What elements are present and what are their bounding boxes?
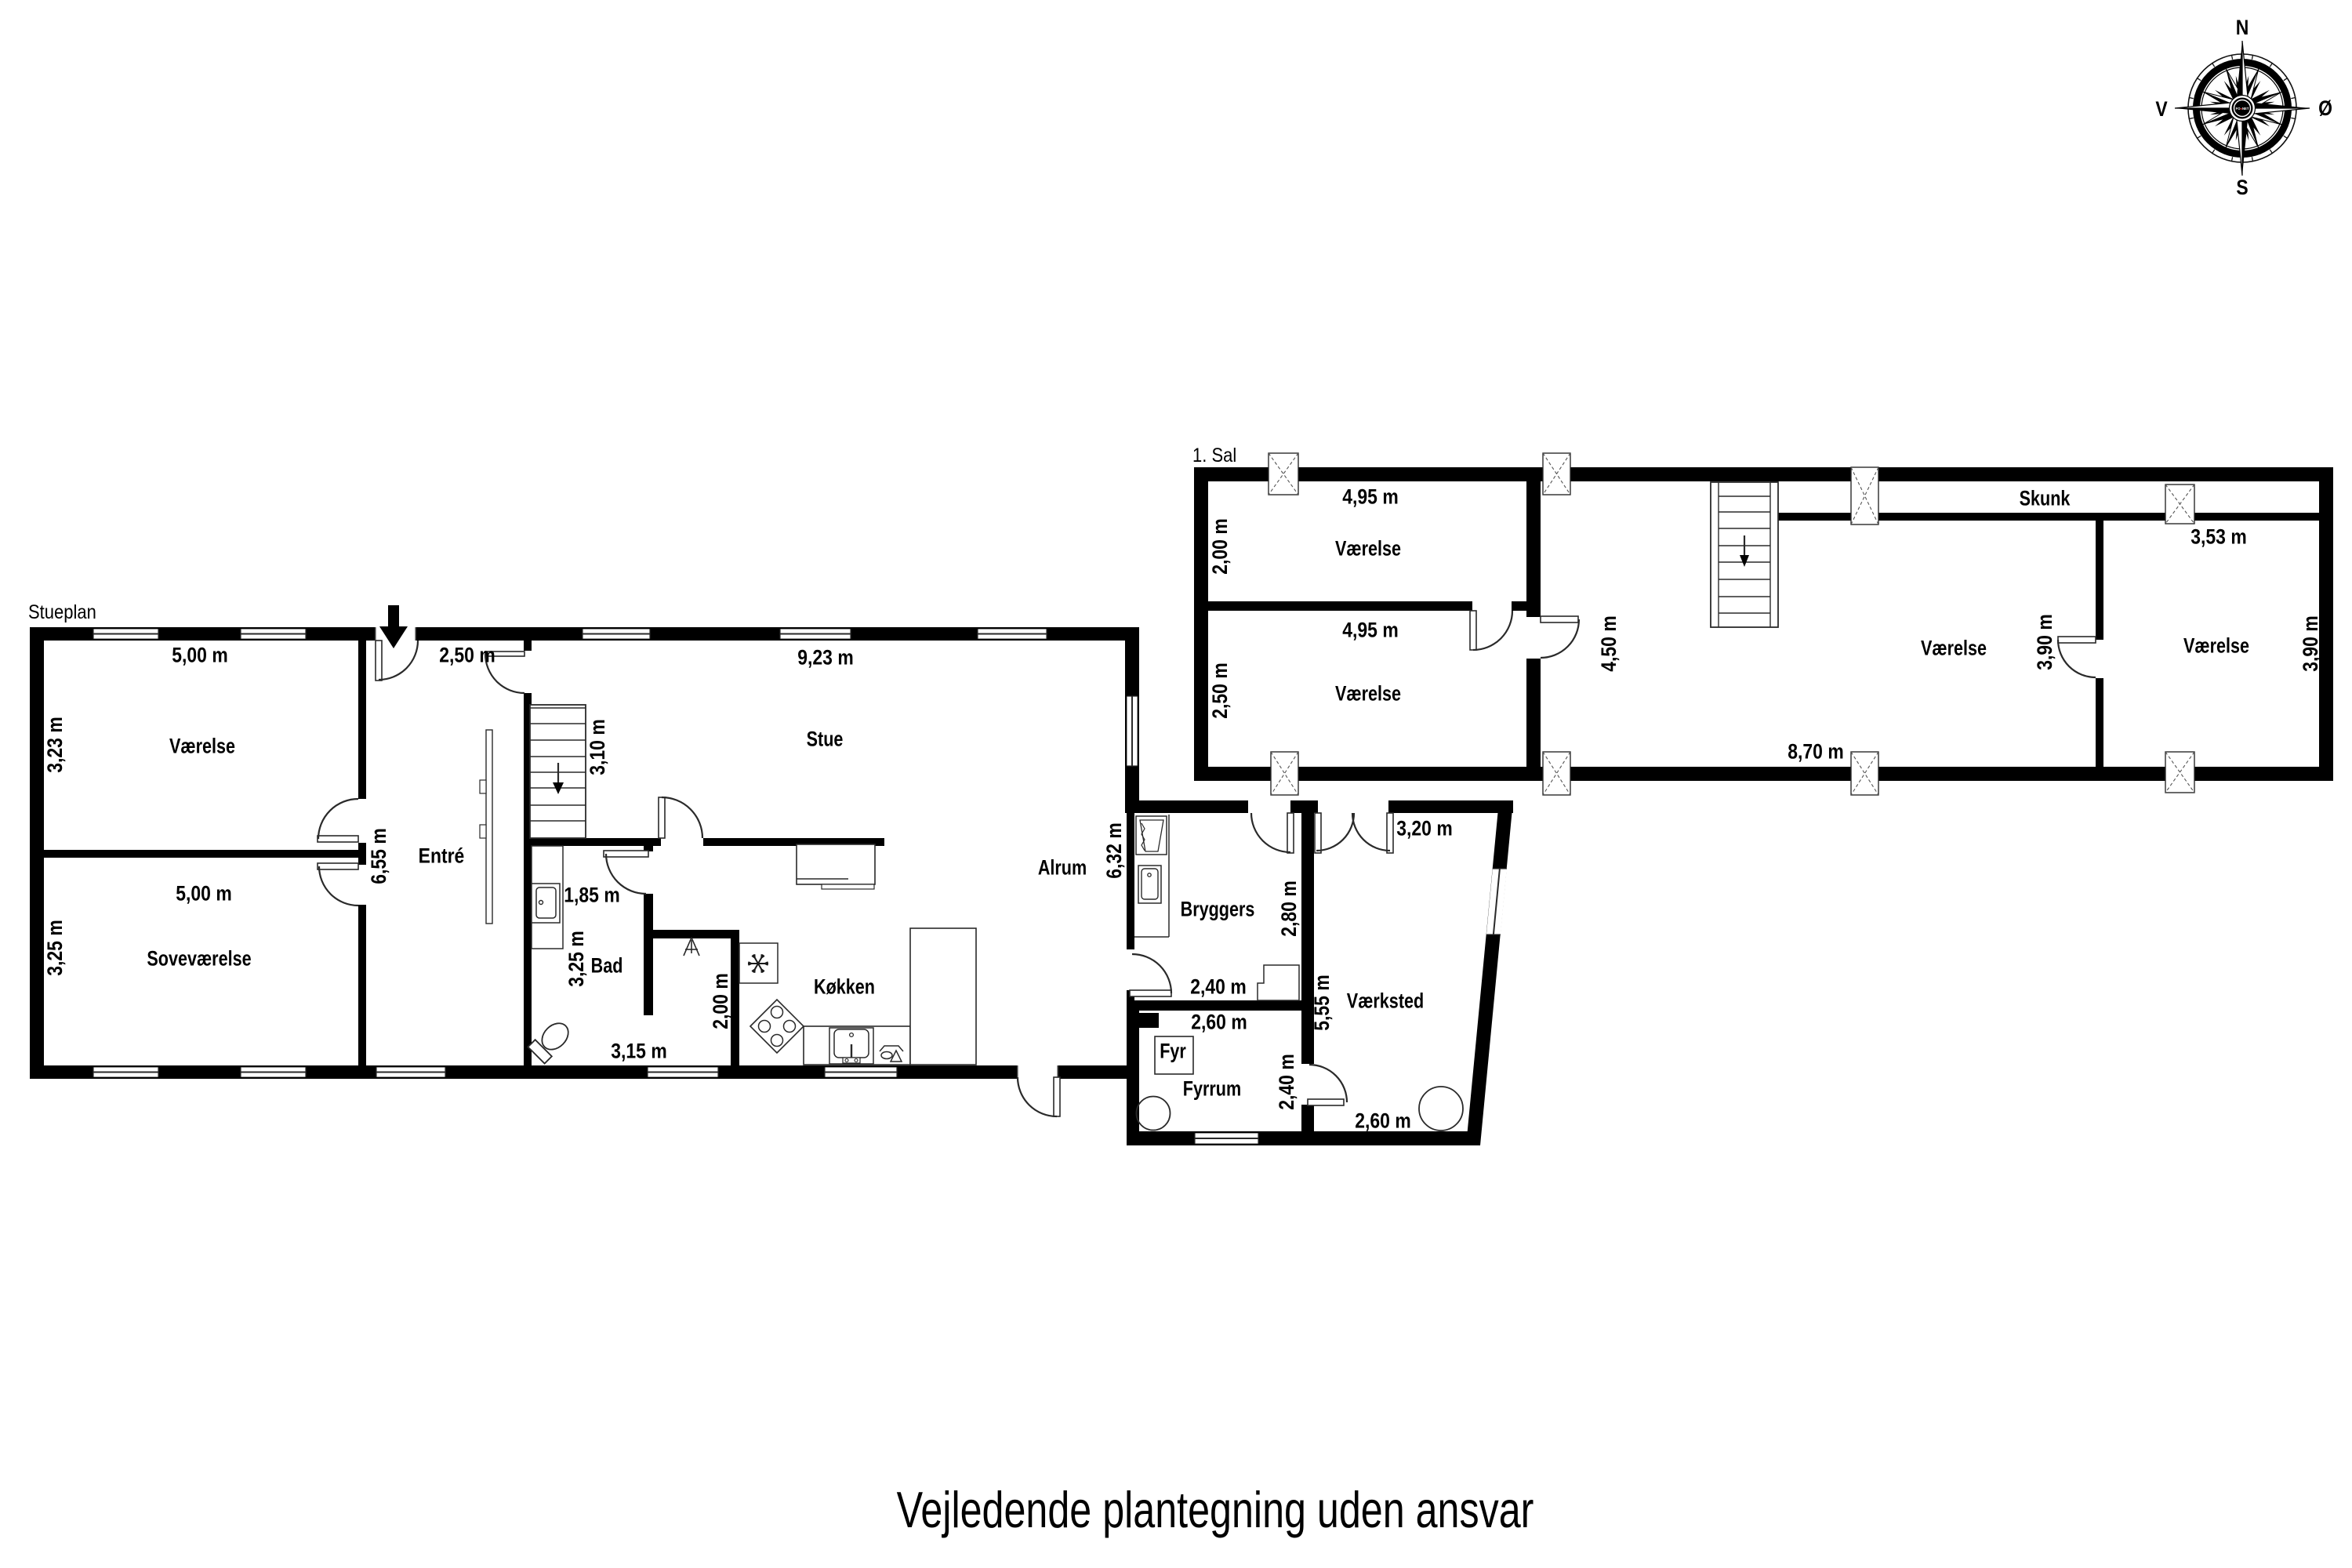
svg-text:3,90 m: 3,90 m	[2033, 614, 2056, 670]
svg-text:Ø: Ø	[2318, 96, 2332, 120]
svg-text:2,80 m: 2,80 m	[1277, 880, 1301, 936]
svg-text:5,55 m: 5,55 m	[1310, 975, 1334, 1030]
svg-text:2,40 m: 2,40 m	[1275, 1054, 1298, 1109]
svg-text:Entré: Entré	[419, 844, 465, 868]
svg-text:3,53 m: 3,53 m	[2190, 525, 2246, 549]
svg-text:2,00 m: 2,00 m	[1208, 518, 1232, 574]
svg-text:Bryggers: Bryggers	[1181, 898, 1255, 921]
svg-text:Værelse: Værelse	[2183, 634, 2249, 658]
svg-text:3,20 m: 3,20 m	[1396, 817, 1452, 840]
svg-text:2,50 m: 2,50 m	[439, 644, 495, 667]
svg-text:4,95 m: 4,95 m	[1342, 485, 1398, 509]
svg-text:3,25 m: 3,25 m	[43, 920, 67, 975]
svg-text:1. Sal: 1. Sal	[1192, 445, 1236, 466]
svg-text:3,15 m: 3,15 m	[611, 1040, 666, 1063]
svg-text:Bad: Bad	[591, 954, 623, 978]
svg-text:2,60 m: 2,60 m	[1355, 1109, 1410, 1133]
svg-text:5,00 m: 5,00 m	[176, 882, 231, 906]
svg-text:Alrum: Alrum	[1038, 856, 1087, 880]
svg-text:3,23 m: 3,23 m	[43, 717, 67, 772]
svg-text:Fyrrum: Fyrrum	[1183, 1077, 1241, 1101]
svg-text:4,50 m: 4,50 m	[1597, 615, 1621, 671]
svg-text:Skunk: Skunk	[2020, 487, 2071, 510]
svg-text:2,00 m: 2,00 m	[709, 973, 732, 1029]
svg-text:6,55 m: 6,55 m	[367, 828, 390, 884]
svg-text:S: S	[2236, 176, 2248, 199]
svg-text:3,10 m: 3,10 m	[586, 719, 609, 775]
svg-text:V: V	[2155, 97, 2168, 121]
svg-text:FO●NET: FO●NET	[2236, 107, 2249, 111]
svg-text:Vejledende plantegning uden an: Vejledende plantegning uden ansvar	[897, 1483, 1534, 1538]
svg-text:Værelse: Værelse	[1335, 682, 1401, 706]
svg-text:Stue: Stue	[807, 728, 844, 751]
svg-text:2,40 m: 2,40 m	[1190, 975, 1246, 999]
svg-text:5,00 m: 5,00 m	[172, 644, 227, 667]
svg-text:Soveværelse: Soveværelse	[147, 947, 251, 971]
svg-text:Værelse: Værelse	[169, 735, 235, 758]
svg-text:9,23 m: 9,23 m	[797, 646, 853, 670]
svg-text:Stueplan: Stueplan	[28, 601, 96, 623]
svg-text:2,60 m: 2,60 m	[1191, 1011, 1247, 1034]
svg-text:Værksted: Værksted	[1347, 989, 1424, 1013]
svg-text:3,90 m: 3,90 m	[2299, 615, 2322, 671]
svg-text:6,32 m: 6,32 m	[1102, 822, 1126, 878]
svg-text:1,85 m: 1,85 m	[564, 884, 619, 907]
svg-text:N: N	[2236, 16, 2249, 39]
svg-text:Værelse: Værelse	[1921, 637, 1987, 660]
svg-text:Fyr: Fyr	[1160, 1040, 1186, 1063]
svg-text:8,70 m: 8,70 m	[1788, 740, 1843, 764]
svg-text:2,50 m: 2,50 m	[1208, 662, 1232, 718]
svg-text:Værelse: Værelse	[1335, 537, 1401, 561]
svg-text:3,25 m: 3,25 m	[564, 931, 588, 986]
svg-text:Køkken: Køkken	[814, 975, 875, 999]
svg-text:4,95 m: 4,95 m	[1342, 619, 1398, 642]
